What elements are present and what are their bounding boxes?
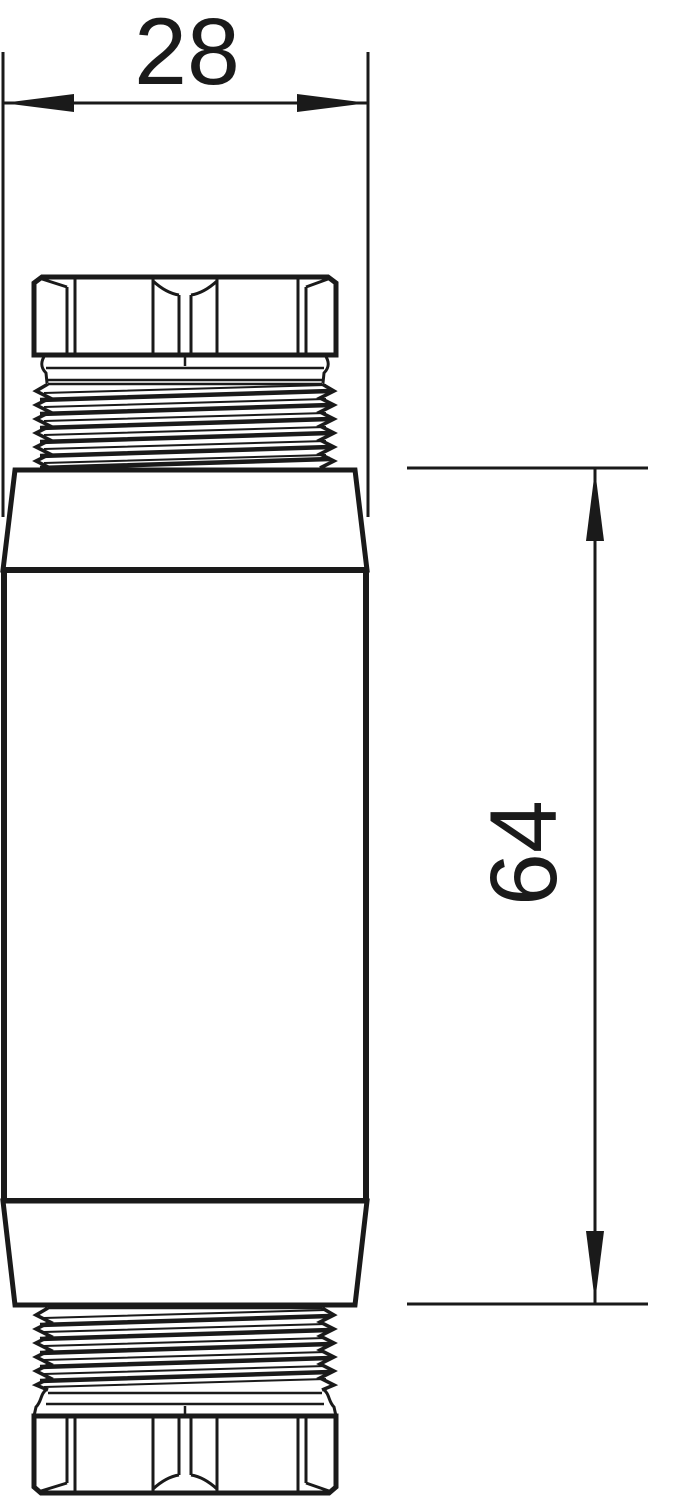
part-view <box>3 277 367 1493</box>
technical-drawing: 28 64 <box>0 0 682 1499</box>
dim-length-value: 64 <box>471 800 577 906</box>
neck-bottom-side-right <box>323 1389 336 1416</box>
neck-bottom <box>34 1389 336 1416</box>
body <box>4 570 366 1201</box>
thread-top-crest-lines <box>40 385 330 468</box>
thread-bottom-zigzag-left <box>36 1308 50 1390</box>
shoulder-top <box>3 470 367 570</box>
hex-nut-bottom <box>34 1416 336 1493</box>
hex-nut-bottom-outline <box>34 1416 336 1493</box>
shoulder-bottom <box>3 1201 367 1305</box>
thread-bottom <box>36 1308 334 1390</box>
thread-bottom-crest-lines <box>40 1310 330 1387</box>
thread-top <box>36 384 334 468</box>
dim-length-arrow-top <box>586 470 604 541</box>
dimension-length: 64 <box>407 468 648 1304</box>
neck-top <box>42 355 329 383</box>
dim-length-arrow-bottom <box>586 1231 604 1302</box>
hex-nut-top <box>34 277 336 355</box>
neck-top-lines <box>46 357 324 380</box>
dim-width-value: 28 <box>134 0 240 105</box>
dim-width-arrow-right <box>297 94 368 112</box>
drawing-sheet: 28 64 <box>0 0 682 1499</box>
neck-bottom-side-left <box>34 1389 47 1416</box>
thread-bottom-zigzag-right <box>320 1308 334 1390</box>
neck-bottom-lines <box>46 1393 324 1414</box>
dim-width-arrow-left <box>3 94 74 112</box>
hex-nut-top-outline <box>34 277 336 355</box>
